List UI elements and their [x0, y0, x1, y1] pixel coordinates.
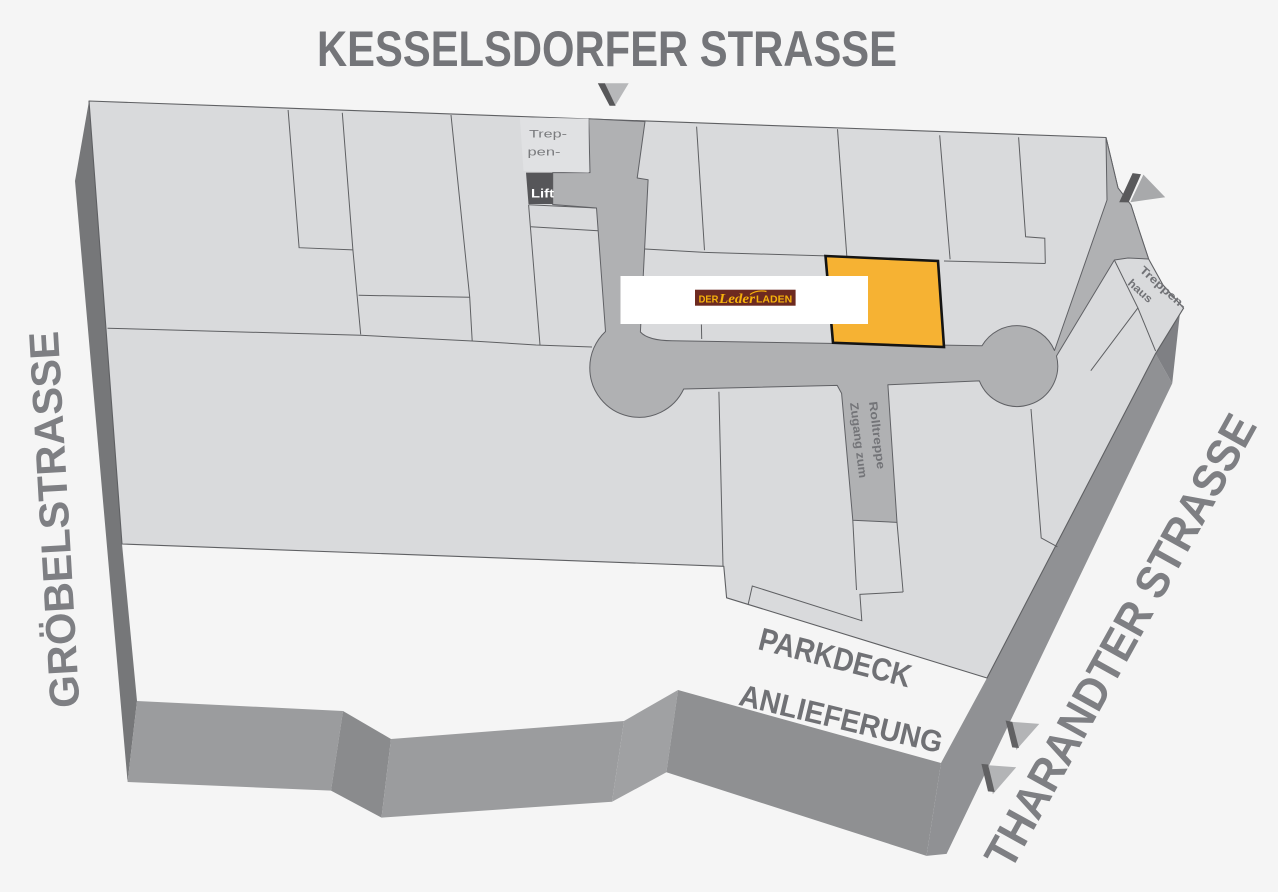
svg-text:pen-: pen-	[528, 147, 561, 159]
svg-text:LADEN: LADEN	[756, 295, 792, 306]
svg-text:Leder: Leder	[718, 292, 756, 307]
svg-text:DER: DER	[699, 295, 720, 306]
svg-text:Lift: Lift	[531, 187, 554, 201]
svg-text:Trep-: Trep-	[529, 129, 567, 141]
svg-text:KESSELSDORFER STRASSE: KESSELSDORFER STRASSE	[317, 21, 897, 77]
